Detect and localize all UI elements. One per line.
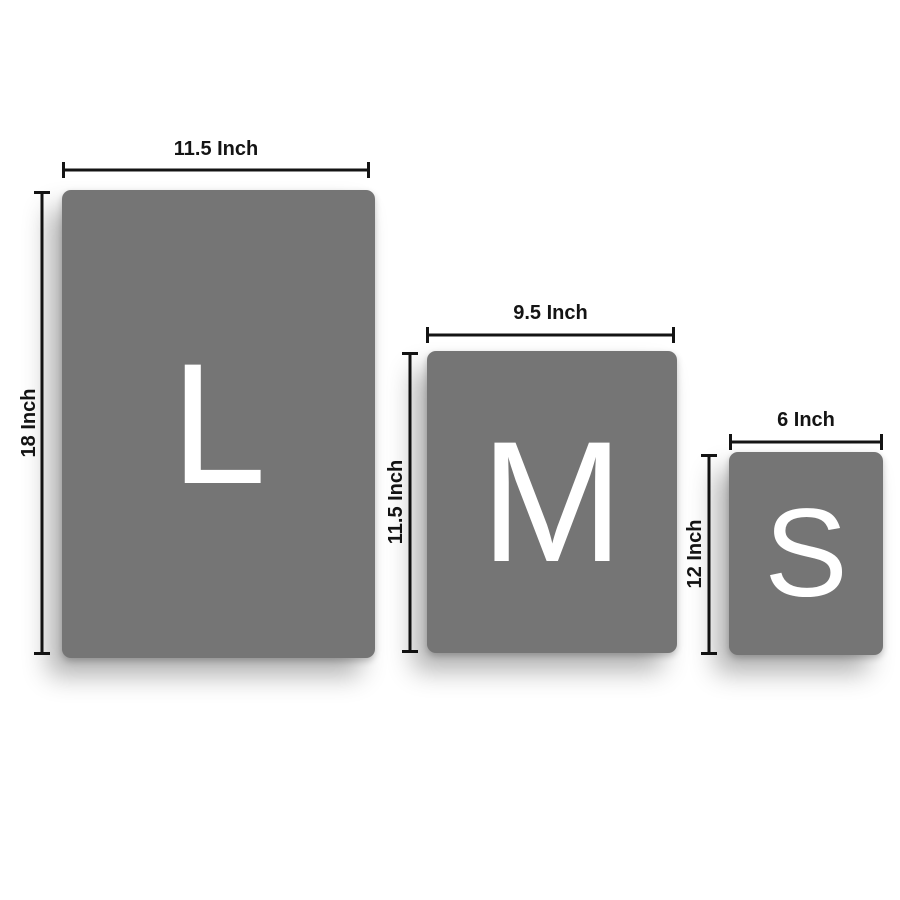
size-comparison-diagram: 11.5 Inch 18 Inch L 9.5 Inch 11.5 Inch M…: [0, 0, 900, 900]
panel-large: L: [62, 190, 375, 658]
width-dimension-line-medium: [426, 327, 675, 343]
dimension-line: [729, 441, 883, 444]
width-dimension-line-large: [62, 162, 370, 178]
dimension-line: [708, 454, 711, 655]
dimension-endcap-right: [672, 327, 675, 343]
dimension-line: [409, 352, 412, 653]
size-letter-large: L: [171, 338, 267, 510]
width-label-small: 6 Inch: [729, 408, 883, 432]
dimension-endcap-bottom: [701, 652, 717, 655]
width-label-medium: 9.5 Inch: [426, 301, 675, 325]
size-letter-medium: M: [480, 416, 623, 588]
width-label-large: 11.5 Inch: [62, 137, 370, 161]
dimension-line: [426, 334, 675, 337]
dimension-endcap-right: [880, 434, 883, 450]
dimension-line: [62, 169, 370, 172]
dimension-line: [41, 191, 44, 655]
size-letter-small: S: [764, 491, 847, 616]
height-dimension-line-small: [701, 454, 717, 655]
dimension-endcap-bottom: [34, 652, 50, 655]
dimension-endcap-bottom: [402, 650, 418, 653]
height-dimension-line-large: [34, 191, 50, 655]
width-dimension-line-small: [729, 434, 883, 450]
panel-small: S: [729, 452, 883, 655]
panel-medium: M: [427, 351, 677, 653]
dimension-endcap-right: [367, 162, 370, 178]
height-dimension-line-medium: [402, 352, 418, 653]
